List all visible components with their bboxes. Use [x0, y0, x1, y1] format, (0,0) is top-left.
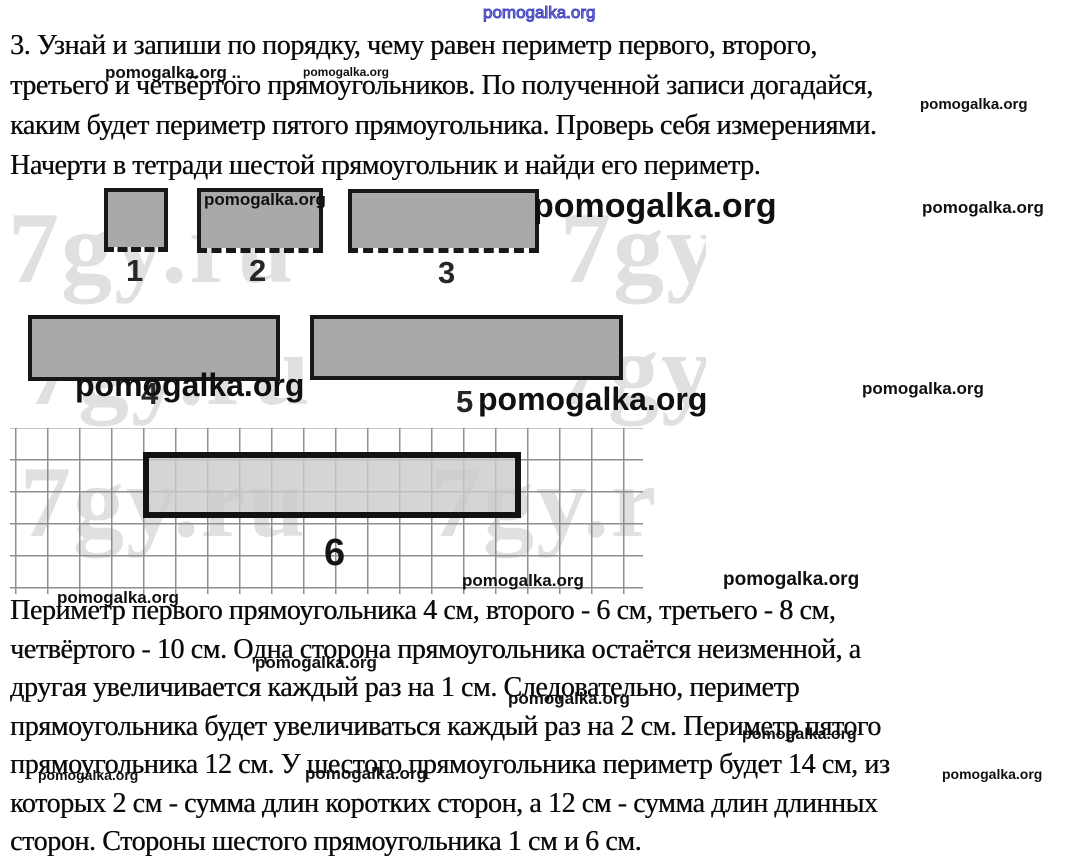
watermark-pomogalka-blue: pomogalka.org [483, 4, 595, 21]
watermark-pomogalka: pomogalka.org [57, 589, 179, 606]
watermark-pomogalka: pomogalka.org .. [105, 64, 241, 81]
watermark-pomogalka: pomogalka.org [742, 727, 857, 743]
rectangle-3 [348, 189, 539, 253]
watermark-pomogalka: pomogalka.org [305, 765, 427, 782]
watermark-pomogalka: pomogalka.org [462, 572, 584, 589]
rectangle-5-label: 5 [456, 386, 473, 417]
watermark-pomogalka: pomogalka.org [922, 199, 1044, 216]
watermark-pomogalka: pomogalka.org [303, 66, 389, 78]
rectangle-6 [143, 452, 521, 518]
answer-line: четвёртого - 10 см. Одна сторона прямоуг… [10, 631, 889, 670]
watermark-pomogalka: pomogalka.org [920, 97, 1028, 112]
answer-line: которых 2 см - сумма длин коротких сторо… [10, 785, 889, 824]
rectangle-6-label: 6 [324, 534, 345, 572]
watermark-pomogalka: pomogalka.org [723, 570, 859, 589]
worksheet-page: { "task": { "lines": [ "3. Узнай и запиш… [0, 0, 1082, 847]
task-line: 3. Узнай и запиши по порядку, чему равен… [10, 26, 876, 66]
rectangle-1 [104, 188, 168, 252]
rectangle-3-label: 3 [438, 257, 455, 288]
watermark-pomogalka: pomogalka.org [204, 191, 326, 208]
task-line: Начерти в тетради шестой прямоугольник и… [10, 146, 876, 186]
watermark-pomogalka: pomogalka.org [38, 768, 138, 782]
watermark-pomogalka: pomogalka.org [862, 380, 984, 397]
rectangle-2-label: 2 [249, 255, 266, 286]
watermark-pomogalka-large: pomogalka.org [533, 189, 777, 223]
watermark-pomogalka: pomogalka.org [942, 767, 1042, 781]
answer-line: сторон. Стороны шестого прямоугольника 1… [10, 823, 889, 862]
answer-line: прямоугольника 12 см. У шестого прямоуго… [10, 746, 889, 785]
watermark-pomogalka: pomogalka.org [508, 690, 630, 707]
rectangle-1-label: 1 [126, 255, 143, 286]
answer-line: другая увеличивается каждый раз на 1 см.… [10, 669, 889, 708]
task-line: каким будет периметр пятого прямоугольни… [10, 106, 876, 146]
task-text: 3. Узнай и запиши по порядку, чему равен… [10, 26, 876, 186]
watermark-pomogalka-large: pomogalka.org [478, 383, 707, 415]
rectangle-5 [310, 315, 623, 380]
watermark-pomogalka: pomogalka.org [255, 654, 377, 671]
watermark-pomogalka-large: pomogalka.org [75, 369, 304, 401]
